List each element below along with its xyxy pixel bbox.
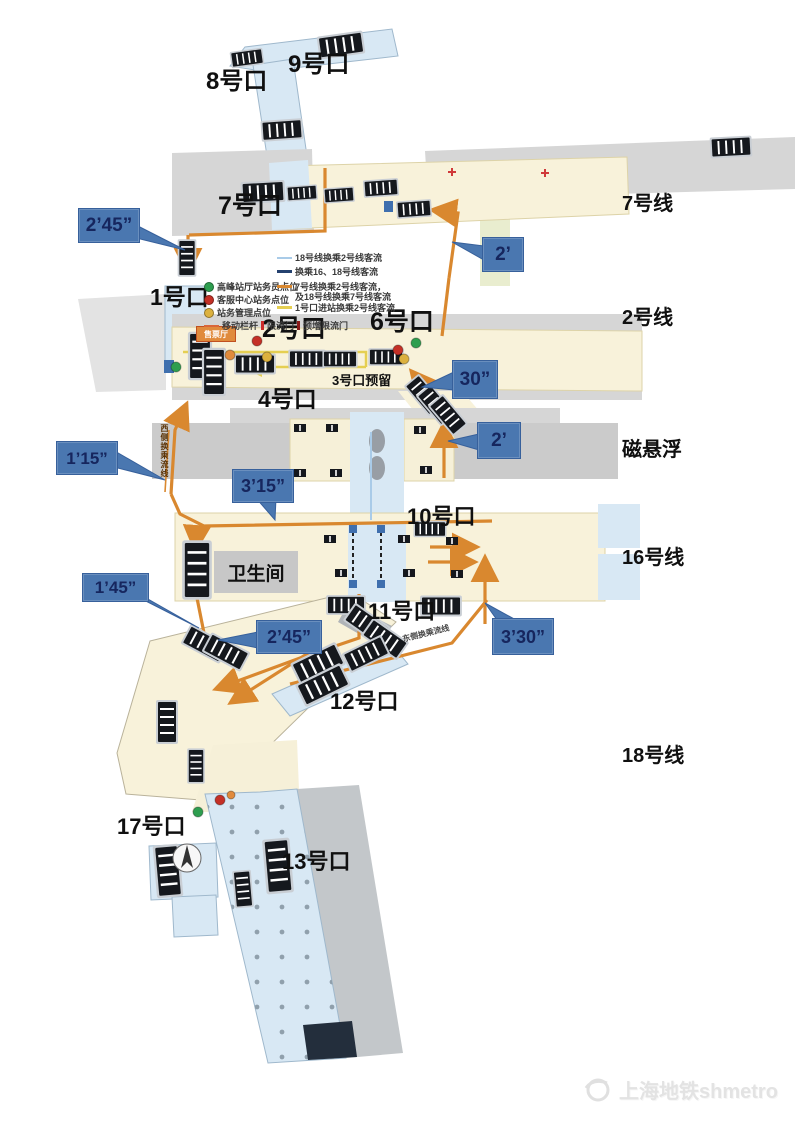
line-2-label: 2号线 (622, 308, 673, 328)
exit-12-label: 12号口 (330, 691, 398, 713)
red-dot-icon (204, 295, 214, 305)
floor-maglev-level (152, 412, 618, 524)
callout-2m-line7: 2’ (482, 237, 524, 272)
toilet-room-label: 卫生间 (214, 551, 298, 593)
limit-gate-icon (261, 321, 264, 330)
exit-8-label: 8号口 (206, 70, 267, 94)
legend-limit-gate-label: 限流门 (267, 319, 294, 332)
callout-2m45s-exit1: 2’45” (78, 208, 140, 243)
shmetro-watermark-text: 上海地铁shmetro (619, 1075, 778, 1104)
shmetro-watermark: 上海地铁shmetro (583, 1074, 778, 1104)
shmetro-logo-icon (583, 1074, 613, 1104)
extra-limit-gate-icon (297, 321, 300, 330)
exit-3-reserved-label: 3号口预留 (332, 374, 391, 387)
legend-flow4-label: 1号口进站换乘2号线客流 (295, 301, 395, 314)
exit-13-label: 13号口 (282, 851, 350, 873)
legend-flow-18-to-2: 18号线换乘2号线客流 (277, 251, 382, 264)
legend-flow-exit1-entry: 1号口进站换乘2号线客流 (277, 301, 395, 314)
legend-barrier-label: 移动栏杆 (222, 319, 258, 332)
compass-icon (173, 844, 201, 872)
legend-station-mgmt-label: 站务管理点位 (217, 306, 271, 319)
exit-9-label: 9号口 (288, 53, 349, 77)
yellow-dot-icon (204, 308, 214, 318)
legend-extra-limit-gate-label: 预增限流门 (303, 319, 348, 332)
line-7-label: 7号线 (622, 194, 673, 214)
callout-1m45s-line18: 1’45” (82, 573, 149, 602)
callout-3m15s-center: 3’15” (232, 469, 294, 503)
line-maglev-label: 磁悬浮 (622, 440, 682, 460)
callout-2m45s-line18: 2’45” (256, 620, 322, 654)
exit-11-label: 11号口 (368, 601, 435, 623)
callout-30s-line2: 30” (452, 360, 498, 399)
station-map: 8号口 9号口 7号口 1号口 2号口 6号口 3号口预留 4号口 10号口 1… (0, 0, 796, 1125)
orange-flow-line-icon (277, 285, 292, 288)
barrier-line-icon (204, 325, 219, 327)
yellow-flow-line-icon (277, 306, 292, 309)
callout-2m-maglev: 2’ (477, 422, 521, 459)
exit-10-label: 10号口 (407, 506, 475, 528)
exit-4-label: 4号口 (258, 388, 317, 411)
line-18-label: 18号线 (622, 746, 684, 766)
legend-station-mgmt-point: 站务管理点位 (204, 306, 271, 319)
line-16-label: 16号线 (622, 548, 684, 568)
exit-1-label: 1号口 (150, 286, 209, 309)
legend-barrier-and-gates: 移动栏杆 限流门 预增限流门 (204, 319, 348, 332)
exit-17-label: 17号口 (117, 816, 185, 838)
callout-1m15s-west: 1’15” (56, 441, 118, 475)
legend-flow2-label: 换乘16、18号线客流 (295, 265, 378, 278)
exit-7-label: 7号口 (218, 194, 282, 219)
west-transfer-flow-label: 西侧换乘流线 (160, 424, 168, 498)
legend-flow-to-16-18: 换乘16、18号线客流 (277, 265, 378, 278)
legend-flow1-label: 18号线换乘2号线客流 (295, 251, 382, 264)
callout-3m30s-east: 3’30” (492, 618, 554, 655)
navy-flow-line-icon (277, 270, 292, 273)
green-dot-icon (204, 282, 214, 292)
blue-flow-line-icon (277, 257, 292, 259)
